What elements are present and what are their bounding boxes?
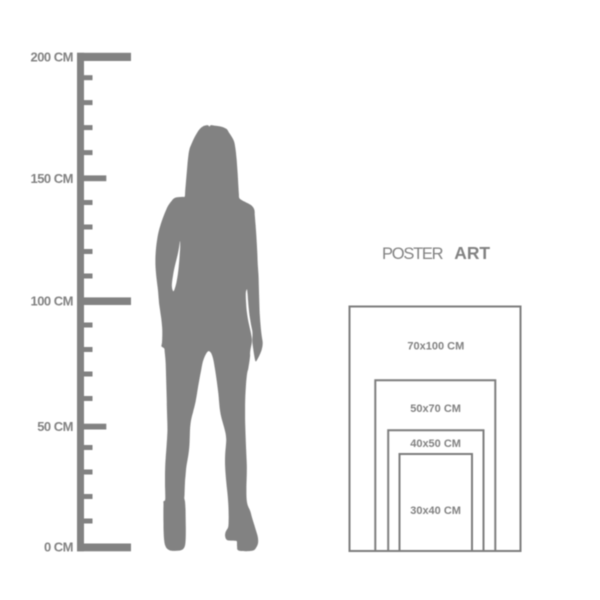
svg-text:40x50 CM: 40x50 CM [410,438,461,450]
svg-text:200 CM: 200 CM [30,49,73,64]
svg-text:30x40 CM: 30x40 CM [410,505,461,517]
svg-text:70x100 CM: 70x100 CM [407,341,464,353]
svg-text:100 CM: 100 CM [30,294,73,309]
svg-text:50 CM: 50 CM [37,419,73,434]
svg-text:POSTER: POSTER [382,245,444,263]
svg-text:0 CM: 0 CM [44,539,73,554]
svg-text:50x70 CM: 50x70 CM [410,403,461,415]
svg-text:150 CM: 150 CM [30,171,73,186]
svg-text:ART: ART [454,243,490,263]
